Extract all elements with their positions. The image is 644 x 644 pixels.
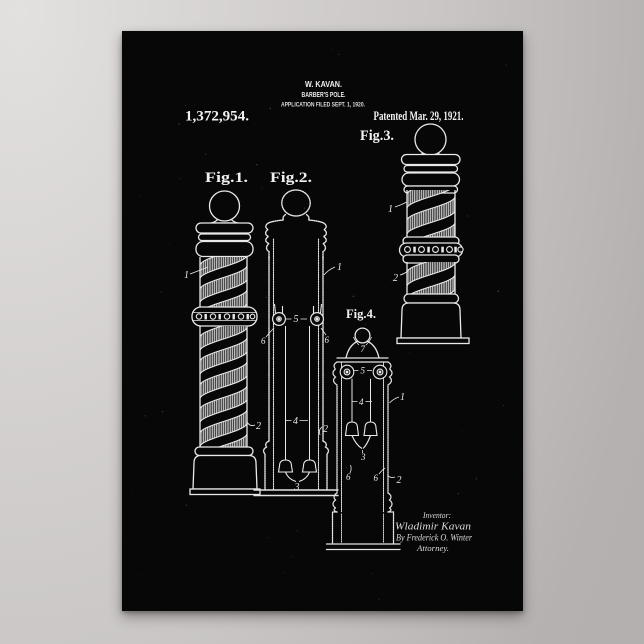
svg-text:5: 5 <box>361 366 366 376</box>
svg-text:1: 1 <box>388 204 393 215</box>
svg-text:Fig.3.: Fig.3. <box>360 128 394 144</box>
svg-text:6: 6 <box>374 473 379 483</box>
svg-text:Fig.4.: Fig.4. <box>346 306 376 321</box>
svg-text:Fig.2.: Fig.2. <box>270 170 312 186</box>
svg-text:3: 3 <box>360 452 366 462</box>
svg-text:Patented Mar. 29, 1921.: Patented Mar. 29, 1921. <box>374 109 464 123</box>
svg-text:Attorney.: Attorney. <box>416 544 449 553</box>
svg-text:6: 6 <box>261 336 266 346</box>
svg-text:7: 7 <box>361 344 366 354</box>
svg-text:2: 2 <box>393 273 398 284</box>
svg-text:Fig.1.: Fig.1. <box>205 170 248 186</box>
svg-text:APPLICATION FILED SEPT. 1, 192: APPLICATION FILED SEPT. 1, 1920. <box>281 102 365 109</box>
svg-text:Wladimir Kavan: Wladimir Kavan <box>395 521 472 533</box>
svg-text:1,372,954.: 1,372,954. <box>185 109 249 125</box>
svg-text:1: 1 <box>337 262 342 273</box>
svg-text:5: 5 <box>294 314 299 325</box>
svg-text:2: 2 <box>397 475 402 486</box>
svg-text:BARBER'S POLE.: BARBER'S POLE. <box>302 92 346 99</box>
svg-text:2: 2 <box>323 424 328 435</box>
svg-text:3: 3 <box>294 482 300 493</box>
svg-text:4: 4 <box>359 397 364 407</box>
svg-text:By Frederick O. Winter: By Frederick O. Winter <box>396 534 472 544</box>
svg-text:6: 6 <box>346 472 351 482</box>
svg-text:Inventor:: Inventor: <box>422 511 451 520</box>
svg-text:W. KAVAN.: W. KAVAN. <box>305 79 342 89</box>
svg-text:1: 1 <box>184 270 189 281</box>
svg-text:4: 4 <box>293 416 298 427</box>
svg-text:6: 6 <box>325 335 330 345</box>
svg-text:2: 2 <box>256 421 261 432</box>
svg-text:1: 1 <box>400 392 405 403</box>
